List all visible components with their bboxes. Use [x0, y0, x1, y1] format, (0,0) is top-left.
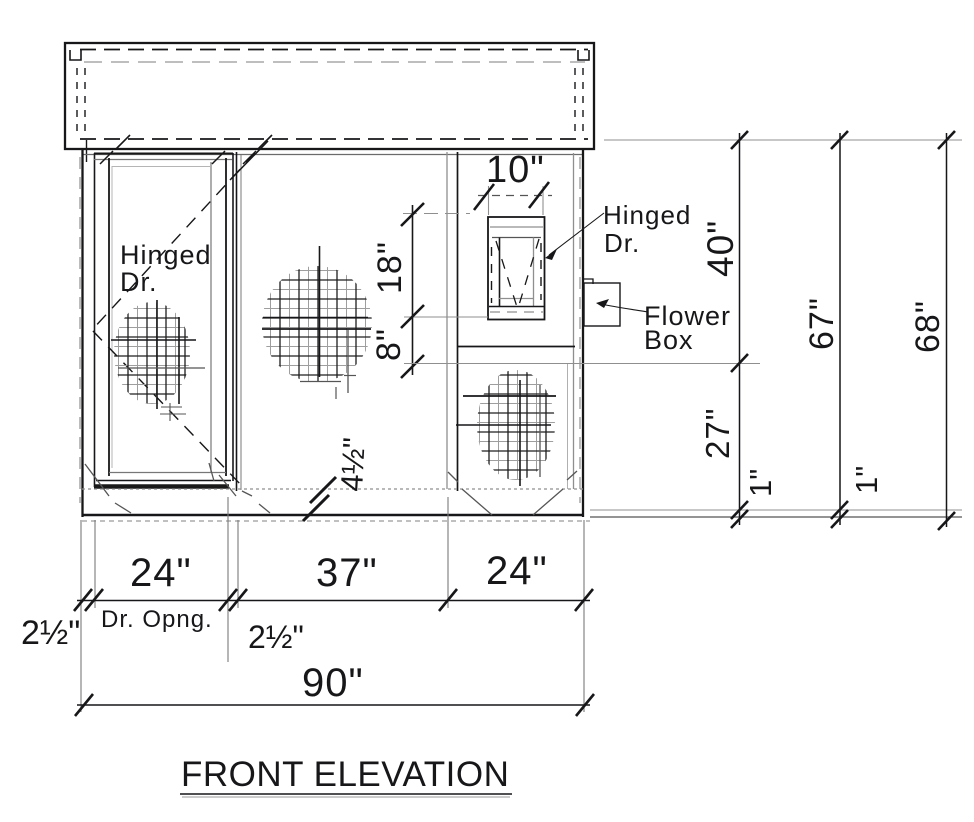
svg-text:4½": 4½"	[334, 436, 372, 492]
svg-text:FRONT ELEVATION: FRONT ELEVATION	[181, 755, 509, 794]
svg-text:10": 10"	[486, 149, 545, 191]
svg-text:Hinged: Hinged	[603, 200, 691, 230]
svg-text:2½": 2½"	[248, 619, 304, 655]
svg-text:Hinged: Hinged	[120, 240, 212, 270]
svg-text:90": 90"	[302, 661, 364, 705]
svg-text:67": 67"	[803, 297, 841, 350]
svg-text:8": 8"	[370, 328, 408, 361]
svg-text:2½": 2½"	[21, 614, 80, 652]
svg-text:18": 18"	[371, 241, 409, 294]
svg-text:24": 24"	[486, 549, 548, 593]
svg-text:1": 1"	[743, 469, 778, 497]
svg-text:Box: Box	[644, 325, 694, 355]
svg-text:Dr.: Dr.	[604, 228, 640, 258]
svg-text:37": 37"	[316, 551, 378, 595]
svg-text:27": 27"	[699, 408, 736, 459]
svg-text:1": 1"	[849, 466, 884, 494]
svg-text:24": 24"	[130, 551, 192, 595]
svg-text:68": 68"	[909, 300, 947, 353]
svg-text:Dr.: Dr.	[120, 267, 158, 297]
svg-text:Dr. Opng.: Dr. Opng.	[101, 606, 213, 633]
svg-text:40": 40"	[700, 220, 741, 277]
